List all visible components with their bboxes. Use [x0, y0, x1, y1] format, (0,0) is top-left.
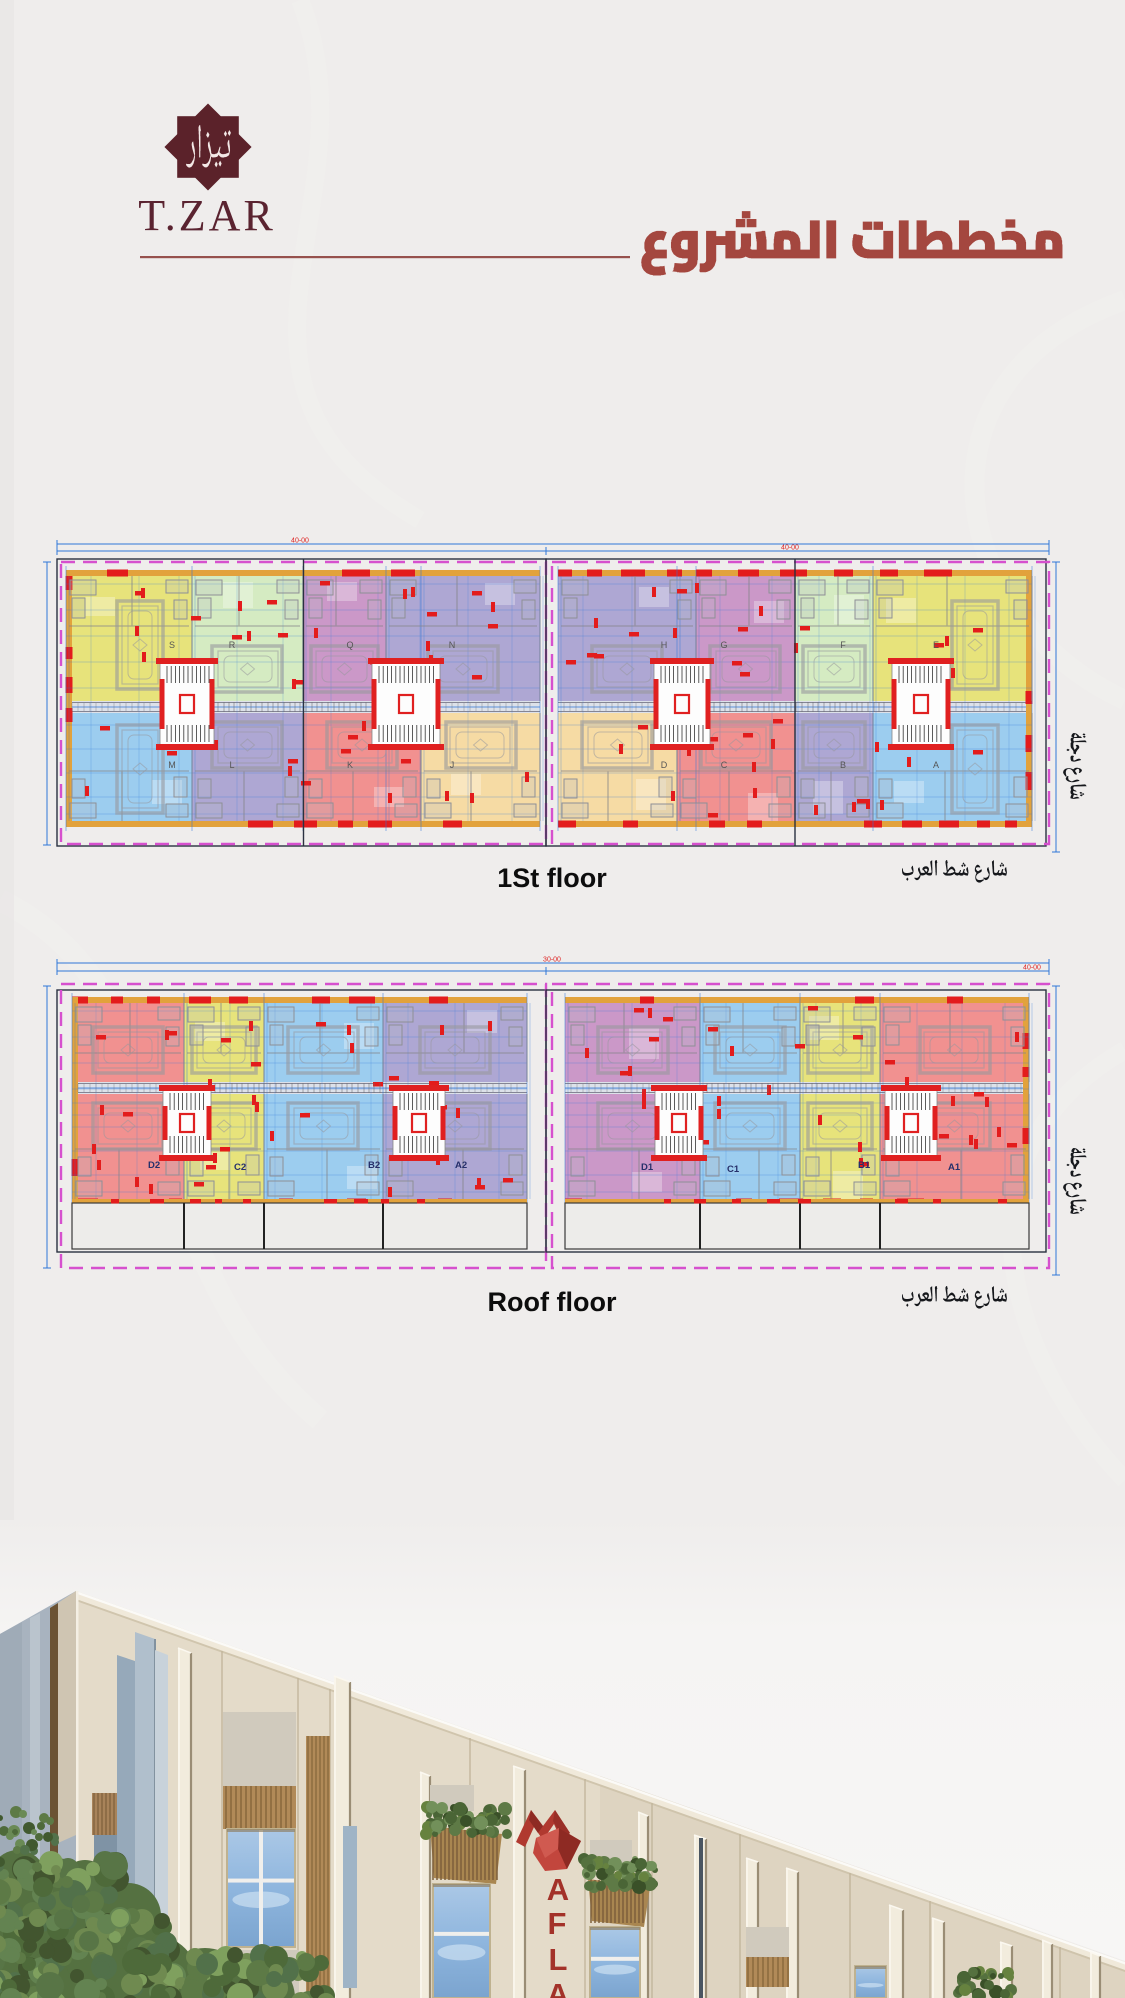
svg-text:C: C	[721, 760, 728, 770]
svg-text:K: K	[347, 760, 353, 770]
svg-text:N: N	[449, 640, 456, 650]
svg-text:R: R	[229, 640, 236, 650]
svg-text:Q: Q	[346, 640, 353, 650]
svg-text:C1: C1	[727, 1164, 740, 1175]
svg-text:C2: C2	[234, 1162, 246, 1173]
svg-text:B: B	[840, 760, 846, 770]
svg-text:40-00: 40-00	[781, 545, 799, 552]
svg-text:A: A	[933, 760, 939, 770]
svg-text:B1: B1	[858, 1160, 871, 1171]
svg-text:40-00: 40-00	[291, 538, 309, 545]
svg-text:30-00: 30-00	[543, 957, 561, 964]
svg-text:40-00: 40-00	[1023, 965, 1041, 972]
svg-text:L: L	[549, 1942, 568, 1977]
svg-text:H: H	[661, 640, 668, 650]
svg-text:L: L	[229, 760, 234, 770]
svg-text:D: D	[661, 760, 668, 770]
svg-text:F: F	[840, 640, 846, 650]
svg-text:D1: D1	[641, 1162, 654, 1173]
svg-text:S: S	[169, 640, 175, 650]
svg-text:A: A	[547, 1872, 569, 1907]
svg-text:A2: A2	[455, 1160, 467, 1171]
svg-text:D2: D2	[148, 1160, 160, 1171]
svg-text:T.ZAR: T.ZAR	[138, 191, 276, 240]
svg-text:A: A	[547, 1977, 569, 1998]
svg-text:G: G	[720, 640, 727, 650]
svg-text:J: J	[450, 760, 455, 770]
svg-text:1St floor: 1St floor	[497, 863, 607, 893]
svg-text:B2: B2	[368, 1160, 380, 1171]
svg-text:E: E	[933, 640, 939, 650]
svg-text:F: F	[548, 1906, 567, 1941]
svg-text:Roof floor: Roof floor	[488, 1287, 617, 1317]
svg-text:M: M	[168, 760, 176, 770]
svg-text:A1: A1	[948, 1162, 961, 1173]
